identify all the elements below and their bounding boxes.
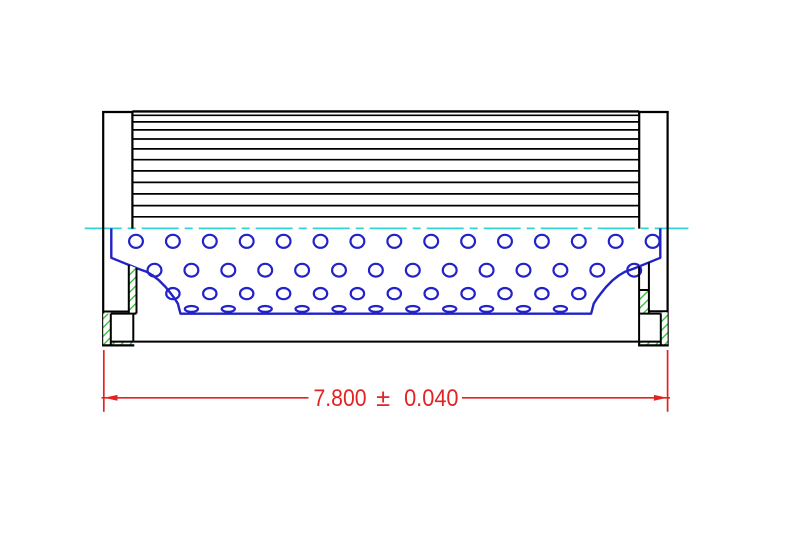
svg-text:±: ±: [376, 385, 390, 412]
svg-text:7.800: 7.800: [314, 385, 367, 412]
svg-text:0.040: 0.040: [404, 385, 458, 412]
